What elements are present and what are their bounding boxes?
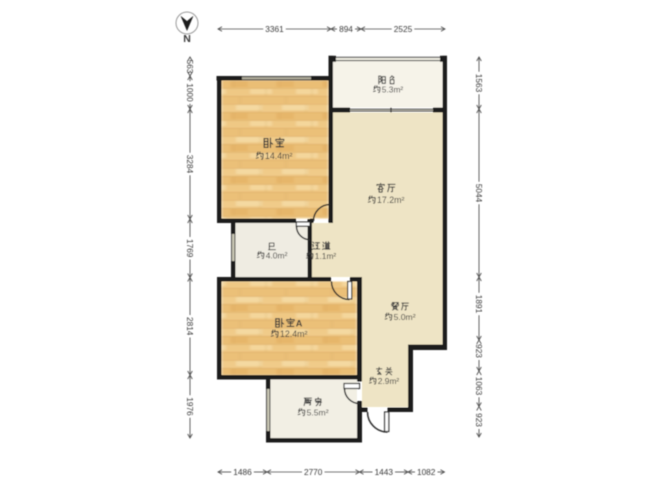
svg-text:3284: 3284 bbox=[185, 155, 195, 174]
svg-text:4.0m²: 4.0m² bbox=[266, 251, 288, 261]
svg-text:5044: 5044 bbox=[474, 184, 484, 203]
svg-text:5.3m²: 5.3m² bbox=[382, 85, 404, 95]
svg-text:923: 923 bbox=[474, 413, 484, 427]
svg-text:2525: 2525 bbox=[394, 24, 413, 34]
svg-text:563: 563 bbox=[185, 60, 195, 74]
svg-text:1486: 1486 bbox=[233, 467, 252, 477]
svg-text:1.1m²: 1.1m² bbox=[315, 251, 337, 261]
svg-text:N: N bbox=[183, 33, 191, 45]
svg-text:2770: 2770 bbox=[304, 467, 323, 477]
svg-text:17.2m²: 17.2m² bbox=[377, 195, 404, 205]
svg-text:1769: 1769 bbox=[185, 239, 195, 258]
svg-text:1891: 1891 bbox=[474, 295, 484, 314]
svg-text:2.9m²: 2.9m² bbox=[378, 376, 400, 386]
svg-text:1063: 1063 bbox=[474, 377, 484, 396]
svg-text:894: 894 bbox=[339, 24, 353, 34]
svg-text:1563: 1563 bbox=[474, 74, 484, 93]
svg-text:5.5m²: 5.5m² bbox=[307, 408, 329, 418]
svg-text:1082: 1082 bbox=[417, 467, 436, 477]
svg-text:1443: 1443 bbox=[375, 467, 394, 477]
svg-text:2814: 2814 bbox=[185, 317, 195, 336]
svg-text:3361: 3361 bbox=[265, 24, 284, 34]
svg-text:12.4m²: 12.4m² bbox=[280, 329, 307, 339]
svg-text:923: 923 bbox=[474, 344, 484, 358]
svg-text:A: A bbox=[296, 319, 303, 329]
svg-text:1976: 1976 bbox=[185, 397, 195, 416]
svg-text:14.4m²: 14.4m² bbox=[265, 151, 292, 161]
svg-text:1000: 1000 bbox=[185, 83, 195, 102]
svg-text:5.0m²: 5.0m² bbox=[394, 312, 416, 322]
